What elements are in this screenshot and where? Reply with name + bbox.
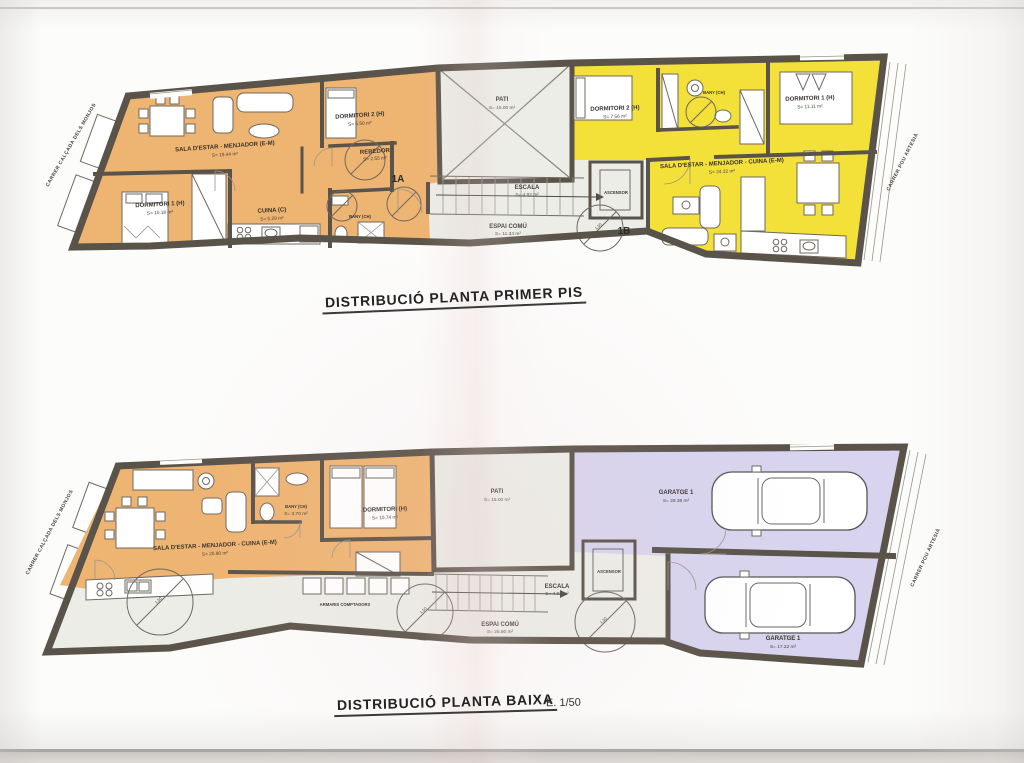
room-name: ESPAI COMÚ <box>481 621 519 628</box>
room-area: S= 4.92 m² <box>545 591 569 597</box>
room-name: PATI <box>496 97 509 103</box>
room-area: S= 15.00 m² <box>489 105 516 111</box>
plan-baixa: ASCENSOR 1.50 1.50 1.50 <box>47 444 926 665</box>
room-area: S= 3.70 m² <box>284 511 308 517</box>
unit-id-1a: 1A <box>392 174 405 185</box>
room-name: BANY (CH) <box>285 504 307 509</box>
room-name: BANY (CH) <box>349 214 371 219</box>
floor-plans-drawing: ASCENSOR 1.50 <box>0 0 1024 763</box>
scanned-floor-plan-sheet: ASCENSOR 1.50 <box>0 0 1024 763</box>
room-name: BANY (CH) <box>703 90 725 95</box>
room-area: S= 4.92 m² <box>515 192 539 198</box>
scale-note: E. 1/50 <box>546 697 581 710</box>
car-garage-1 <box>712 466 867 536</box>
room-name: ESCALA <box>545 584 570 590</box>
room-name: ESPAI COMÚ <box>489 223 527 230</box>
elevator-label: ASCENSOR <box>597 569 621 574</box>
elevator-label: ASCENSOR <box>604 190 628 195</box>
scan-band-bottom <box>0 752 1024 763</box>
room-name: PATI <box>491 489 504 495</box>
room-area: S= 7.56 m² <box>603 114 627 121</box>
garage-area: S= 17.22 m² <box>770 644 797 650</box>
garage-area: S= 28.38 m² <box>663 498 690 504</box>
room-area: S= 25.80 m² <box>487 629 514 635</box>
room-area: S= 11.11 m² <box>797 104 823 111</box>
car-garage-2 <box>705 571 855 639</box>
room-area: S= 11.34 m² <box>495 231 521 237</box>
room-area: S= 15.00 m² <box>484 497 511 503</box>
room-name: ARMARIS COMPTADORS <box>320 602 371 607</box>
plan-primer-pis: ASCENSOR 1.50 <box>58 54 906 263</box>
room-area: S= 5.29 m² <box>260 215 284 222</box>
garage-name: GARATGE 1 <box>659 490 694 496</box>
garage-name: GARATGE 1 <box>766 636 801 642</box>
room-area: S= 10.74 m² <box>372 515 399 522</box>
meter-cabinets <box>303 578 409 594</box>
unit-id-1b: 1B <box>618 226 631 237</box>
room-name: ESCALA <box>515 185 540 191</box>
